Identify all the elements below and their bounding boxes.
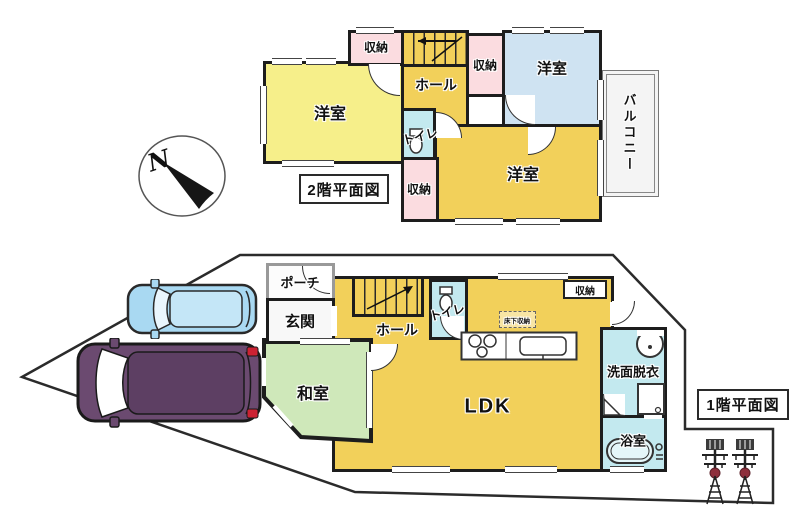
car-blue	[124, 279, 260, 339]
floor2-title-text: 2階平面図	[307, 179, 380, 200]
room-label: 床下収納	[504, 315, 530, 325]
floor1-title-text: 1階平面図	[706, 394, 779, 415]
window	[282, 160, 334, 167]
room-label: 洋室	[537, 58, 567, 79]
room-label: 収納	[473, 57, 497, 74]
floorplan-image: N	[0, 0, 800, 522]
room-label: バルコニー	[620, 93, 639, 173]
sliding-door	[300, 338, 350, 345]
f1-stairs	[352, 276, 424, 317]
room-label: 浴室	[620, 431, 646, 450]
utility-pole-icon	[702, 436, 728, 506]
room-label: ホール	[415, 75, 457, 95]
room-label: ホール	[376, 320, 418, 340]
utility-pole-icon	[732, 436, 758, 506]
f2-stairs	[401, 30, 469, 67]
room-label: ポーチ	[280, 273, 319, 292]
room-label: 洋室	[507, 161, 539, 185]
room-label: 和室	[297, 380, 329, 404]
room-label: 収納	[575, 283, 595, 298]
window	[597, 140, 604, 196]
window	[505, 466, 557, 473]
window	[356, 27, 394, 34]
window	[498, 273, 568, 280]
compass: N	[136, 133, 228, 219]
window	[516, 218, 560, 225]
window	[550, 27, 584, 34]
kitchen-counter	[460, 331, 578, 361]
room-label: 洋室	[314, 100, 346, 124]
f1-stairs-arrow	[355, 279, 421, 314]
room-label: 洗面脱衣	[607, 362, 659, 381]
f2-stairs-arrow	[404, 33, 466, 64]
window	[306, 58, 336, 65]
window	[392, 466, 450, 473]
window	[272, 58, 302, 65]
floor1-title: 1階平面図	[697, 389, 789, 420]
room-label: 収納	[364, 39, 388, 56]
room-label: LDK	[464, 396, 511, 419]
window	[455, 218, 503, 225]
floor2-title: 2階平面図	[299, 174, 389, 204]
doorway	[331, 306, 337, 336]
window	[597, 80, 604, 120]
car-purple	[74, 338, 266, 428]
room-label: 玄関	[285, 311, 315, 332]
window	[260, 86, 267, 144]
window	[512, 27, 544, 34]
room-label: 収納	[407, 181, 431, 198]
